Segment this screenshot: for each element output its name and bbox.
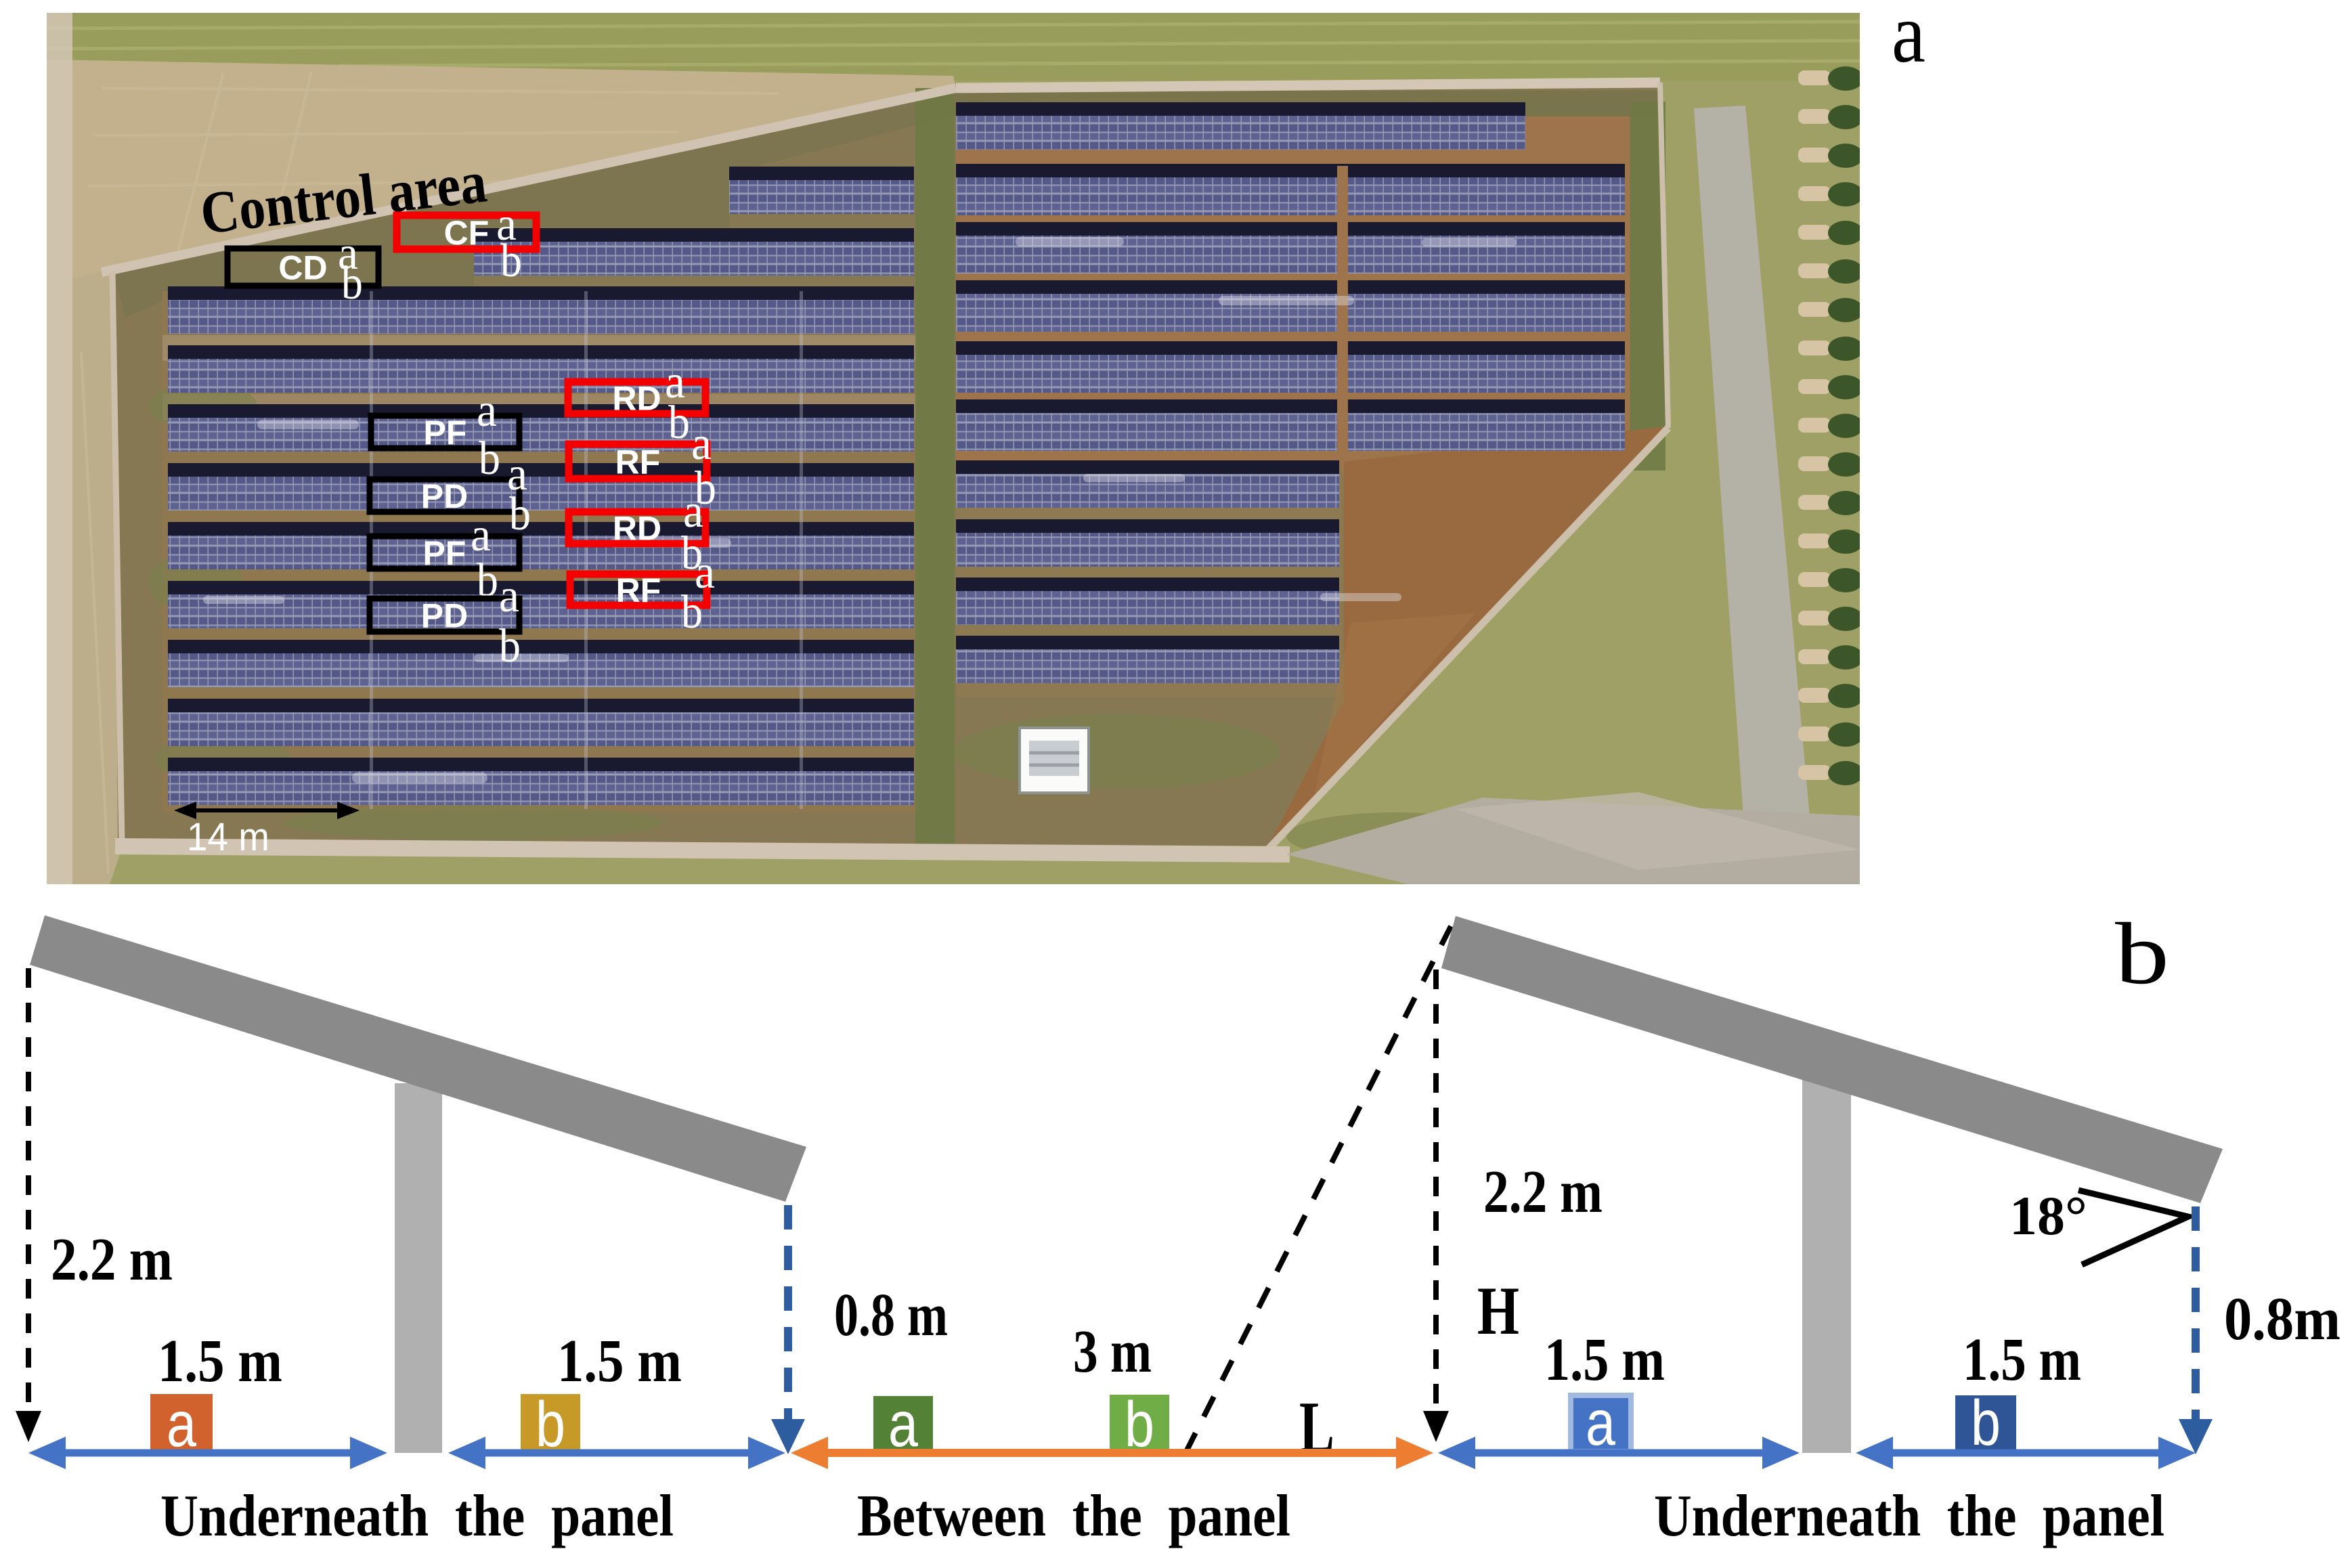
svg-text:a: a bbox=[499, 570, 519, 622]
svg-text:b: b bbox=[1971, 1387, 2001, 1459]
svg-text:RF: RF bbox=[616, 571, 661, 609]
svg-text:2.2 m: 2.2 m bbox=[51, 1226, 173, 1293]
svg-text:0.8 m: 0.8 m bbox=[834, 1282, 948, 1349]
svg-text:RF: RF bbox=[615, 443, 661, 481]
svg-text:b: b bbox=[500, 235, 522, 287]
svg-text:RD: RD bbox=[613, 510, 661, 548]
svg-text:RD: RD bbox=[612, 380, 661, 418]
svg-text:0.8m: 0.8m bbox=[2224, 1286, 2340, 1353]
svg-text:PD: PD bbox=[421, 477, 468, 515]
svg-text:3 m: 3 m bbox=[1073, 1318, 1152, 1385]
svg-text:a: a bbox=[477, 385, 497, 437]
svg-text:a: a bbox=[1892, 0, 1925, 81]
svg-text:b: b bbox=[681, 586, 703, 638]
svg-text:PF: PF bbox=[424, 414, 467, 452]
svg-text:PF: PF bbox=[423, 534, 466, 572]
svg-text:18°: 18° bbox=[2009, 1185, 2087, 1246]
svg-text:1.5 m: 1.5 m bbox=[557, 1328, 682, 1395]
svg-text:2.2 m: 2.2 m bbox=[1483, 1158, 1603, 1225]
svg-text:b: b bbox=[499, 620, 521, 672]
svg-text:b: b bbox=[2115, 905, 2169, 1003]
svg-text:Underneath the panel: Underneath the panel bbox=[160, 1483, 674, 1549]
svg-text:14 m: 14 m bbox=[187, 815, 269, 859]
svg-text:CD: CD bbox=[278, 249, 327, 287]
svg-text:1.5 m: 1.5 m bbox=[1544, 1326, 1665, 1393]
svg-text:H: H bbox=[1477, 1273, 1519, 1349]
svg-text:a: a bbox=[1586, 1387, 1615, 1459]
svg-text:1.5 m: 1.5 m bbox=[1963, 1326, 2081, 1393]
svg-text:a: a bbox=[471, 509, 491, 561]
svg-text:Underneath the panel: Underneath the panel bbox=[1654, 1483, 2164, 1549]
svg-text:Between the panel: Between the panel bbox=[857, 1483, 1290, 1549]
svg-text:1.5 m: 1.5 m bbox=[158, 1328, 282, 1395]
svg-text:PD: PD bbox=[421, 597, 468, 635]
svg-text:CF: CF bbox=[444, 214, 489, 252]
svg-text:b: b bbox=[341, 257, 363, 309]
svg-text:b: b bbox=[509, 488, 531, 540]
